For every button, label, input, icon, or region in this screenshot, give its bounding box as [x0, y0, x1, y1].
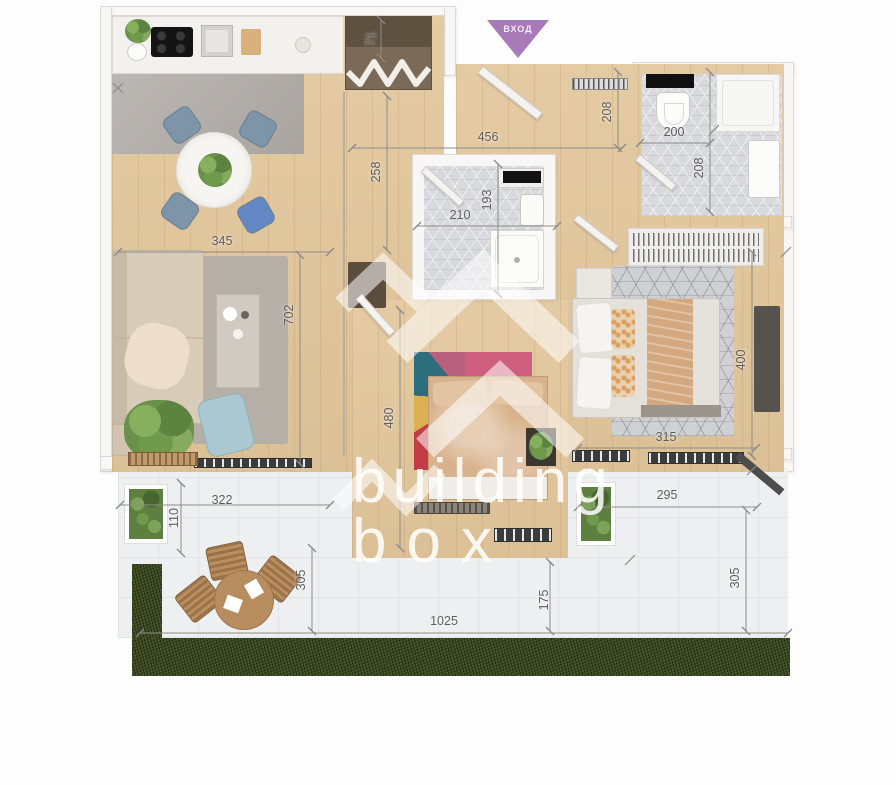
dim-bath-top-height: 208 [692, 158, 706, 179]
dim-bedroom-mid-height: 480 [382, 408, 396, 429]
dim-hallway-left-height: 258 [369, 162, 383, 183]
dim-closet-depth: 71 [364, 32, 378, 46]
dim-terrace-left-width: 322 [212, 493, 233, 507]
dim-terrace-left-height: 305 [294, 570, 308, 591]
dim-total-width: 1025 [430, 614, 458, 628]
watermark-line2: box [352, 512, 614, 572]
dim-bedroom-right-height: 400 [734, 350, 748, 371]
dim-bedroom-right-width: 315 [656, 430, 677, 444]
dimension-lines [0, 0, 896, 785]
entrance-label: ВХОД [487, 24, 549, 34]
floor-plan: 71 456 208 200 208 258 210 193 345 702 4… [0, 0, 896, 785]
entrance-marker: ВХОД [487, 20, 549, 58]
dim-living-width: 345 [212, 234, 233, 248]
dim-terrace-right-width: 295 [657, 488, 678, 502]
dim-hallway-height: 208 [600, 102, 614, 123]
dim-terrace-right-height: 305 [728, 568, 742, 589]
dim-bath-mid-height: 193 [480, 190, 494, 211]
dim-terrace-left-depth: 110 [167, 508, 181, 528]
dim-bath-top-width: 200 [664, 125, 685, 139]
dim-living-height: 702 [282, 305, 296, 326]
watermark-text: building box [352, 452, 614, 572]
dim-terrace-mid-height: 175 [537, 590, 551, 611]
dim-hallway-width: 456 [478, 130, 499, 144]
dim-bath-mid-width: 210 [450, 208, 471, 222]
watermark-line1: building [352, 452, 614, 512]
